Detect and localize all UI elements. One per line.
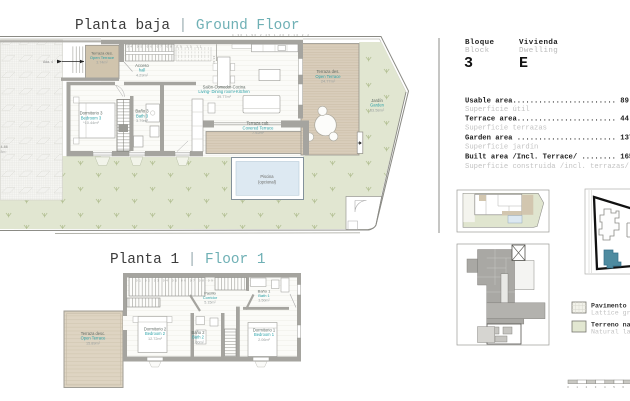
svg-text:Planta baja | Ground Floor: Planta baja | Ground Floor	[75, 18, 300, 34]
svg-text:Open Terrace: Open Terrace	[81, 336, 106, 341]
svg-text:Piscina: Piscina	[260, 174, 274, 179]
svg-text:Block: Block	[465, 47, 490, 55]
svg-text:3.74m²: 3.74m²	[96, 61, 108, 65]
svg-text:2.06m²: 2.06m²	[258, 338, 271, 342]
svg-text:Bloque: Bloque	[465, 39, 495, 47]
svg-text:Garden area ..................: Garden area ....................... 137	[465, 135, 630, 143]
svg-text:Pavimento cerámico: Pavimento cerámico	[591, 303, 630, 310]
svg-text:Corridor: Corridor	[203, 295, 218, 300]
svg-text:Built area /Incl. Terrace/ ...: Built area /Incl. Terrace/ ........ 165	[465, 154, 630, 162]
svg-text:39.77m²: 39.77m²	[217, 95, 232, 99]
svg-text:Planta 1 | Floor 1: Planta 1 | Floor 1	[110, 252, 265, 268]
svg-text:Ada- 4: Ada- 4	[43, 60, 53, 64]
svg-text:Bath 2: Bath 2	[192, 335, 205, 340]
svg-text:15.89m²: 15.89m²	[86, 341, 101, 345]
svg-text:7.92m²: 7.92m²	[252, 130, 265, 135]
svg-text:Bedroom 2: Bedroom 2	[145, 331, 166, 336]
svg-text:63.58m²: 63.58m²	[370, 107, 385, 112]
svg-text:04 05 06 07 08 09 10 11: 04 05 06 07 08 09 10 11	[127, 45, 203, 49]
svg-text:Living- Dining room+Kitchen: Living- Dining room+Kitchen	[198, 89, 250, 94]
svg-text:Bedroom 1: Bedroom 1	[254, 332, 275, 337]
svg-text:E: E	[519, 55, 528, 72]
svg-text:Natural land: Natural land	[591, 329, 630, 336]
svg-text:Superficie jardín: Superficie jardín	[465, 144, 538, 152]
svg-text:Open Terrace: Open Terrace	[90, 55, 115, 60]
svg-text:01 02 03 04 05 06 07 08 09: 01 02 03 04 05 06 07 08 09	[136, 279, 215, 283]
svg-text:Lattice gravel: Lattice gravel	[591, 310, 630, 317]
svg-text:3.50m²: 3.50m²	[258, 299, 270, 303]
svg-text:Bath 1: Bath 1	[258, 293, 270, 298]
svg-text:24.77m²: 24.77m²	[321, 79, 336, 84]
svg-text:Terrace area..................: Terrace area....................... 44	[465, 116, 630, 124]
svg-text:Vivienda: Vivienda	[519, 39, 558, 47]
svg-text:Superficie terrazas: Superficie terrazas	[465, 125, 547, 133]
svg-text:4-66: 4-66	[1, 145, 8, 149]
svg-text:Superficie construida /incl. t: Superficie construida /incl. terrazas/	[465, 163, 629, 171]
svg-text:8m²: 8m²	[1, 150, 8, 154]
svg-text:Superficie útil: Superficie útil	[465, 106, 530, 114]
svg-text:Dwelling: Dwelling	[519, 47, 558, 55]
svg-text:(opcional): (opcional)	[258, 180, 277, 185]
svg-text:4.30 1.90 2.45 1.20 3.10: 4.30 1.90 2.45 1.20 3.10 2.2	[232, 33, 310, 37]
svg-text:Usable area...................: Usable area........................ 89	[465, 98, 629, 106]
svg-text:3: 3	[464, 55, 473, 72]
svg-text:5.15m²: 5.15m²	[204, 301, 216, 305]
svg-text:5.00m²: 5.00m²	[192, 340, 205, 344]
svg-text:4.29m²: 4.29m²	[136, 72, 149, 77]
svg-text:*10.44m²: *10.44m²	[83, 120, 99, 125]
svg-text:Terreno natural: Terreno natural	[591, 322, 630, 329]
svg-text:3.79m²: 3.79m²	[136, 118, 149, 123]
svg-text:12.72m²: 12.72m²	[148, 337, 163, 341]
